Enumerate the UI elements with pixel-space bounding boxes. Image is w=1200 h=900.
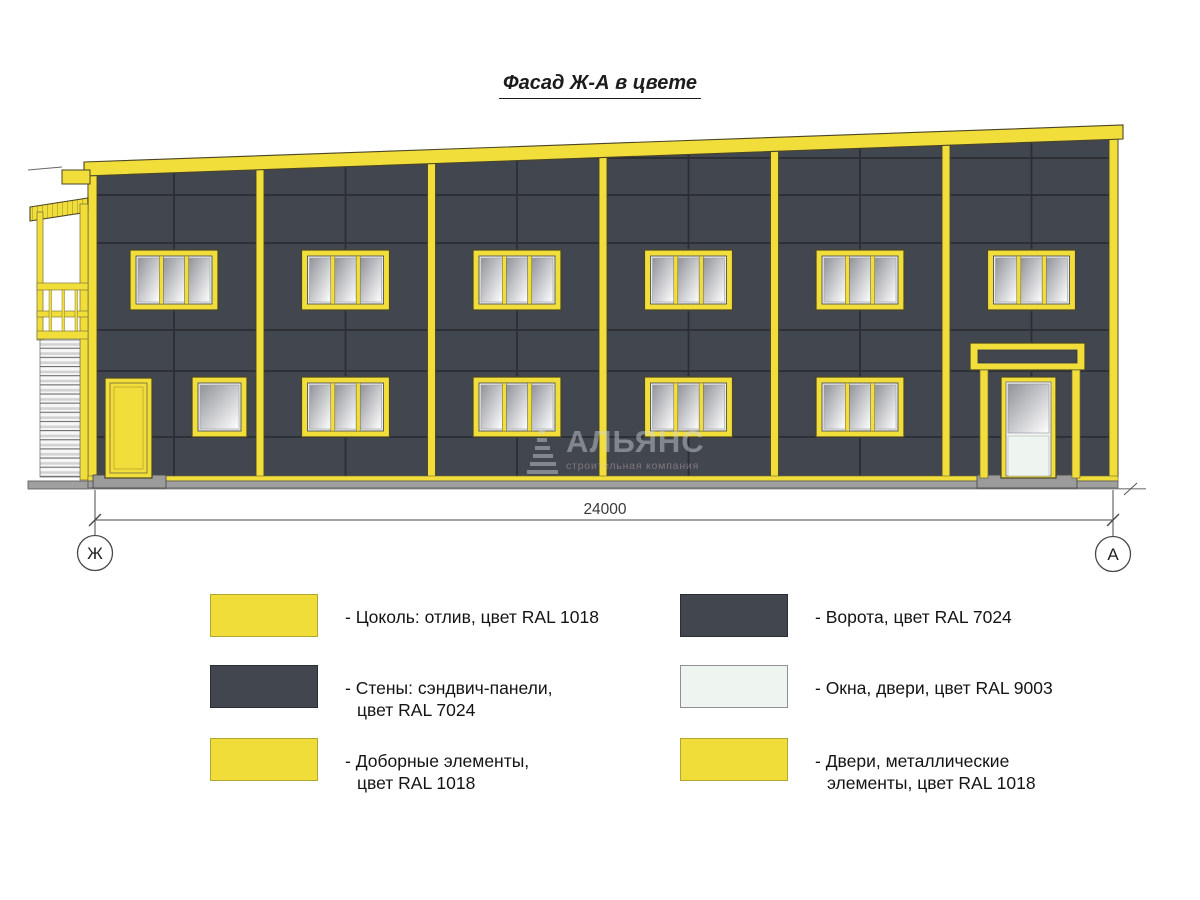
dimension-label: 24000 (555, 501, 655, 519)
legend-swatch-windows (680, 665, 788, 708)
watermark-subtitle: строительная компания (566, 460, 705, 472)
axis-label-left: Ж (75, 544, 115, 564)
legend-swatch-doors (680, 738, 788, 781)
watermark-logo-icon (524, 426, 560, 474)
legend-swatch-gates (680, 594, 788, 637)
legend-label-trim: - Доборные элементы, цвет RAL 1018 (345, 750, 529, 794)
watermark: АЛЬЯНС строительная компания (524, 426, 705, 474)
axis-label-right: А (1093, 545, 1133, 565)
legend-label-doors: - Двери, металлические элементы, цвет RA… (815, 750, 1036, 794)
legend-swatch-trim (210, 738, 318, 781)
legend-swatch-walls (210, 665, 318, 708)
legend-label-walls: - Стены: сэндвич-панели, цвет RAL 7024 (345, 677, 553, 721)
legend-label-windows: - Окна, двери, цвет RAL 9003 (815, 677, 1053, 699)
external-stair (28, 198, 88, 489)
stair-treads (40, 340, 80, 477)
legend-swatch-plinth (210, 594, 318, 637)
drawing-sheet: Фасад Ж-А в цвете (0, 0, 1200, 900)
legend-label-plinth: - Цоколь: отлив, цвет RAL 1018 (345, 606, 599, 628)
entrance-door (1001, 377, 1056, 478)
watermark-name: АЛЬЯНС (566, 426, 705, 458)
legend-label-gates: - Ворота, цвет RAL 7024 (815, 606, 1012, 628)
